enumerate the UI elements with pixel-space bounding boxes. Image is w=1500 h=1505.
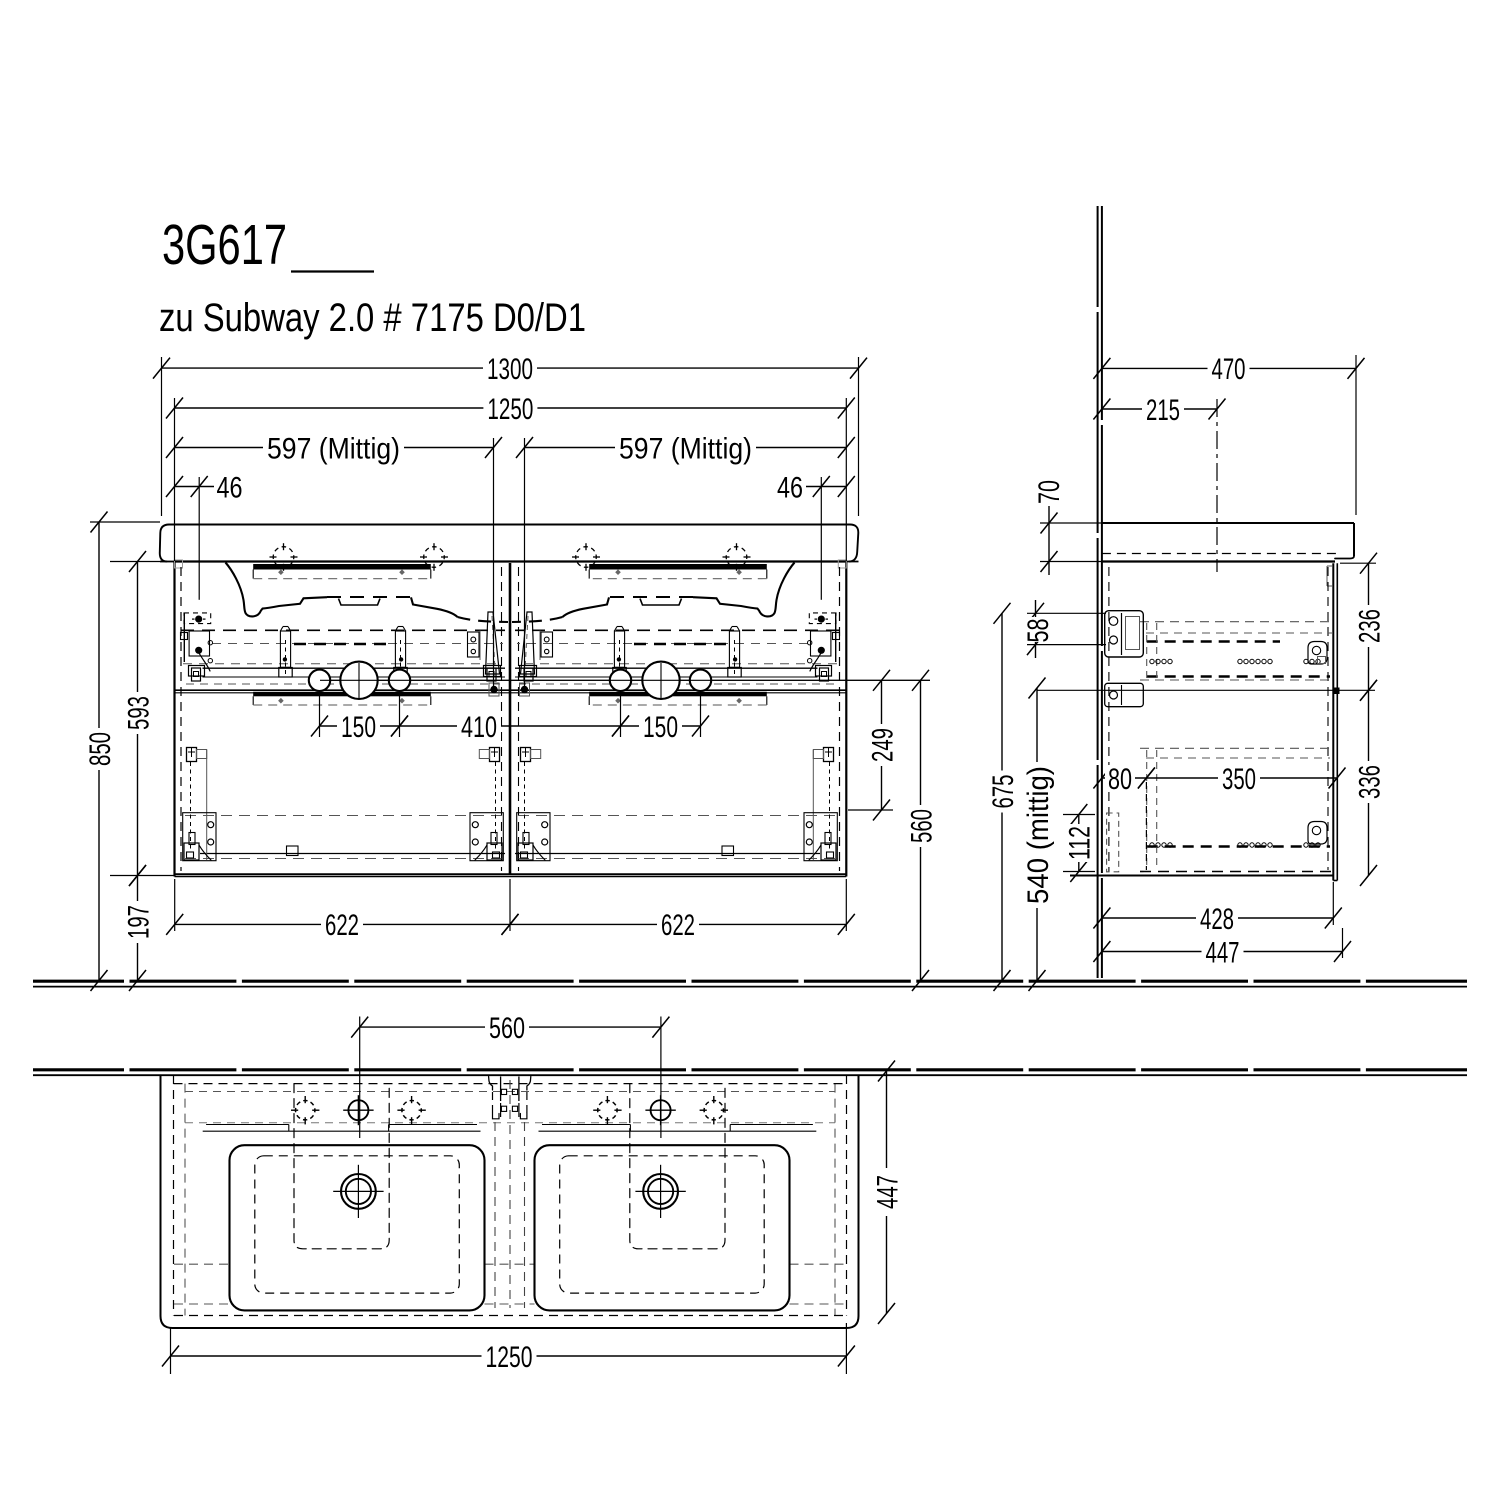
svg-text:197: 197 bbox=[122, 905, 155, 939]
svg-text:540 (mittig): 540 (mittig) bbox=[1022, 766, 1055, 904]
svg-text:560: 560 bbox=[905, 809, 938, 843]
svg-text:150: 150 bbox=[643, 711, 678, 744]
svg-text:597 (Mittig): 597 (Mittig) bbox=[267, 432, 400, 465]
svg-text:850: 850 bbox=[84, 732, 117, 766]
svg-text:597 (Mittig): 597 (Mittig) bbox=[619, 432, 752, 465]
svg-text:70: 70 bbox=[1033, 480, 1066, 504]
svg-text:428: 428 bbox=[1200, 903, 1234, 936]
svg-text:675: 675 bbox=[987, 775, 1020, 809]
svg-text:447: 447 bbox=[871, 1175, 904, 1209]
svg-text:447: 447 bbox=[1206, 936, 1240, 969]
svg-text:zu Subway 2.0 # 7175 D0/D1: zu Subway 2.0 # 7175 D0/D1 bbox=[159, 296, 586, 340]
svg-text:1250: 1250 bbox=[486, 1341, 533, 1374]
svg-text:622: 622 bbox=[661, 909, 695, 942]
svg-text:46: 46 bbox=[217, 471, 243, 504]
svg-text:1300: 1300 bbox=[487, 353, 533, 386]
svg-text:46: 46 bbox=[777, 471, 803, 504]
svg-text:410: 410 bbox=[461, 711, 497, 744]
svg-text:249: 249 bbox=[866, 728, 899, 762]
svg-text:112: 112 bbox=[1064, 826, 1097, 860]
svg-text:622: 622 bbox=[325, 909, 359, 942]
svg-text:150: 150 bbox=[341, 711, 376, 744]
svg-text:3G617: 3G617 bbox=[162, 213, 287, 277]
svg-text:336: 336 bbox=[1353, 765, 1386, 799]
svg-text:58: 58 bbox=[1022, 619, 1055, 643]
svg-text:350: 350 bbox=[1222, 763, 1256, 796]
svg-text:1250: 1250 bbox=[487, 393, 533, 426]
svg-text:215: 215 bbox=[1146, 394, 1180, 427]
svg-text:236: 236 bbox=[1353, 609, 1386, 643]
svg-text:593: 593 bbox=[122, 696, 155, 730]
svg-text:470: 470 bbox=[1212, 353, 1246, 386]
svg-text:560: 560 bbox=[489, 1012, 525, 1045]
svg-text:80: 80 bbox=[1108, 763, 1132, 796]
